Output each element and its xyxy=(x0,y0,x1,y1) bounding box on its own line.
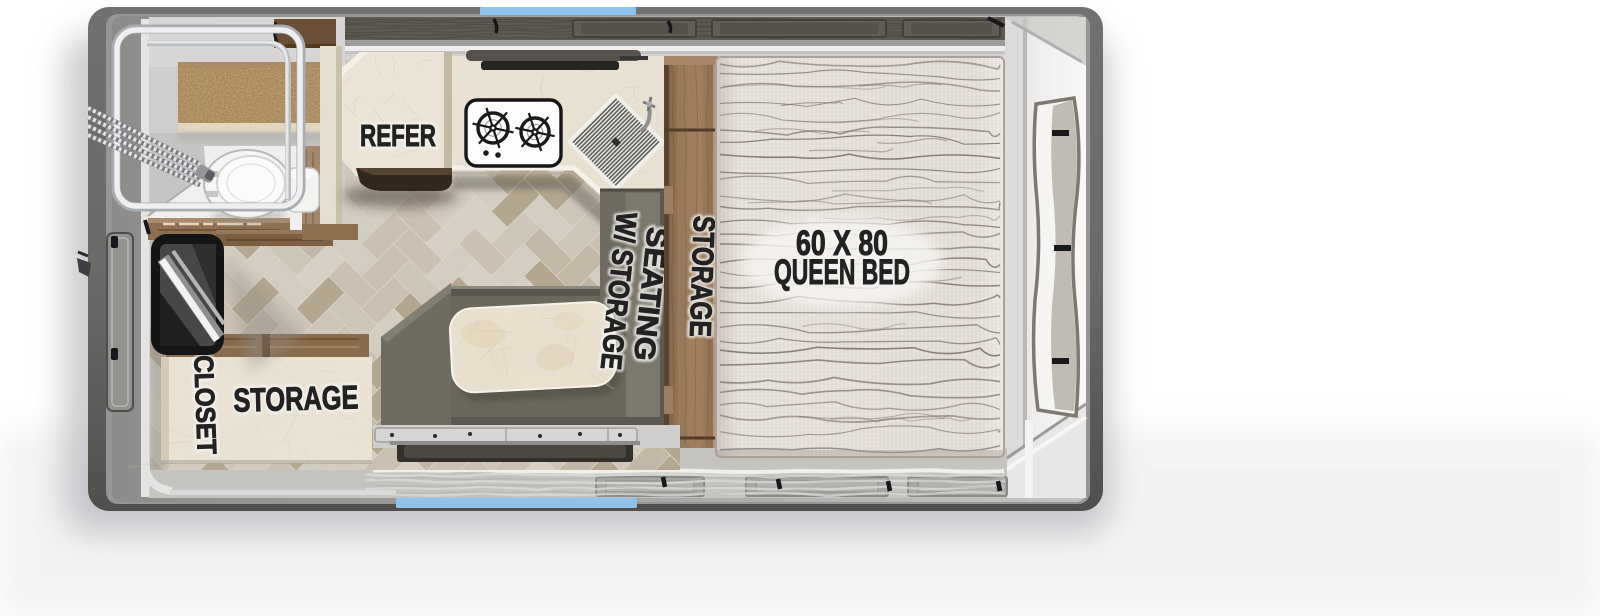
svg-text:STORAGE: STORAGE xyxy=(683,215,720,337)
svg-text:QUEEN BED: QUEEN BED xyxy=(774,253,910,292)
svg-text:CLOSET: CLOSET xyxy=(188,355,221,455)
svg-text:REFER: REFER xyxy=(360,118,436,153)
svg-text:STORAGE: STORAGE xyxy=(233,378,359,418)
